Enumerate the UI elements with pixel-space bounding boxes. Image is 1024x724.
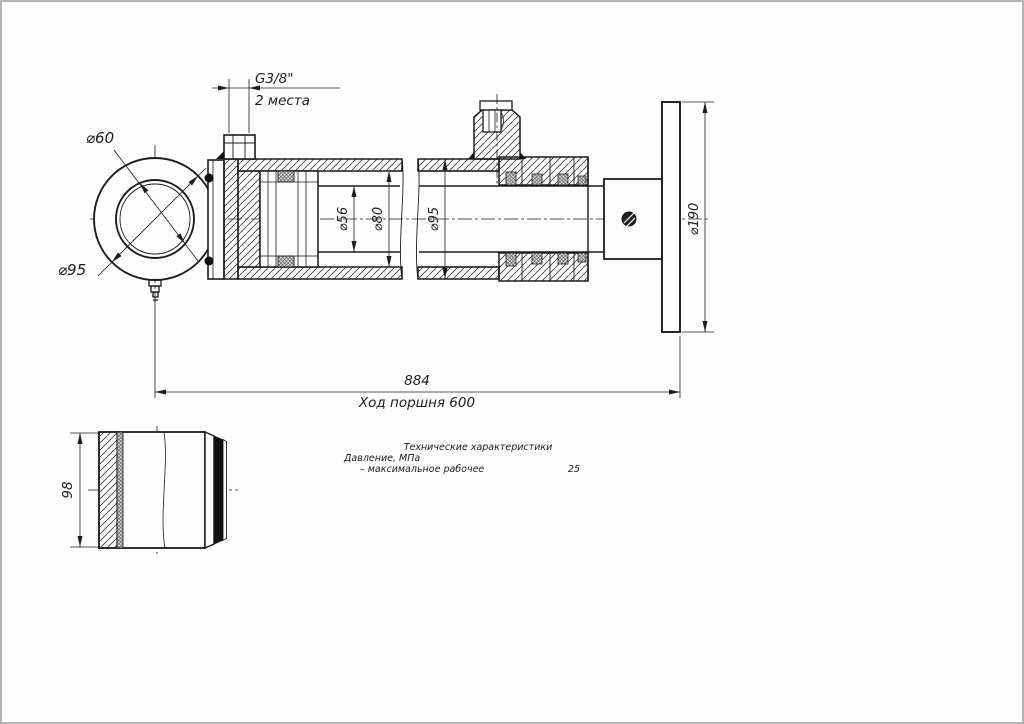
- bushing-width-label: 98: [60, 481, 76, 498]
- port-boss-left: [224, 135, 255, 159]
- bushing-seal-ring: [214, 436, 223, 545]
- rod-dia-label: ⌀56: [336, 207, 351, 231]
- specs-row-label: Давление, МПа: [343, 453, 420, 464]
- wiper-seal: [578, 176, 586, 185]
- bore-dia-label: ⌀80: [371, 207, 386, 231]
- bushing-chamfer: [205, 432, 214, 548]
- drawing-sheet: G3/8" 2 места ⌀60 ⌀95 ⌀56 ⌀80 ⌀95 ⌀190 8…: [0, 0, 1024, 724]
- rod-end-block: [604, 179, 662, 259]
- rod-seal: [532, 174, 542, 185]
- port-thread-label: G3/8": [255, 71, 293, 87]
- port-places-label: 2 места: [255, 93, 310, 109]
- specs-row-value: 25: [568, 464, 580, 475]
- mounting-flange: [662, 102, 680, 332]
- main-sectional-view: [90, 94, 708, 332]
- flange-dia-label: ⌀190: [687, 203, 702, 236]
- bushing-detail-view: [70, 426, 238, 554]
- specs-row-sub: – максимальное рабочее: [360, 464, 484, 475]
- specs-block: Технические характеристики Давление, МПа…: [343, 442, 580, 475]
- piston-stroke-label: Ход поршня 600: [358, 395, 475, 411]
- piston-seal-bottom: [278, 256, 294, 267]
- connector-plate: [205, 151, 225, 279]
- overall-length-label: 884: [404, 373, 430, 389]
- rod-seal: [506, 172, 516, 185]
- rod-seal: [558, 174, 568, 185]
- plug-hex: [483, 110, 501, 132]
- piston: [260, 171, 318, 267]
- piston-seal-top: [278, 171, 294, 182]
- eye-outer-dia-label: ⌀95: [58, 261, 86, 279]
- rear-head: [224, 159, 260, 279]
- eye-ring: [94, 145, 216, 302]
- eye-bore-dia-label: ⌀60: [86, 129, 114, 147]
- tube-dia-label: ⌀95: [427, 207, 442, 231]
- specs-title: Технические характеристики: [404, 442, 553, 453]
- cylinder-drawing: G3/8" 2 места ⌀60 ⌀95 ⌀56 ⌀80 ⌀95 ⌀190 8…: [2, 2, 1024, 724]
